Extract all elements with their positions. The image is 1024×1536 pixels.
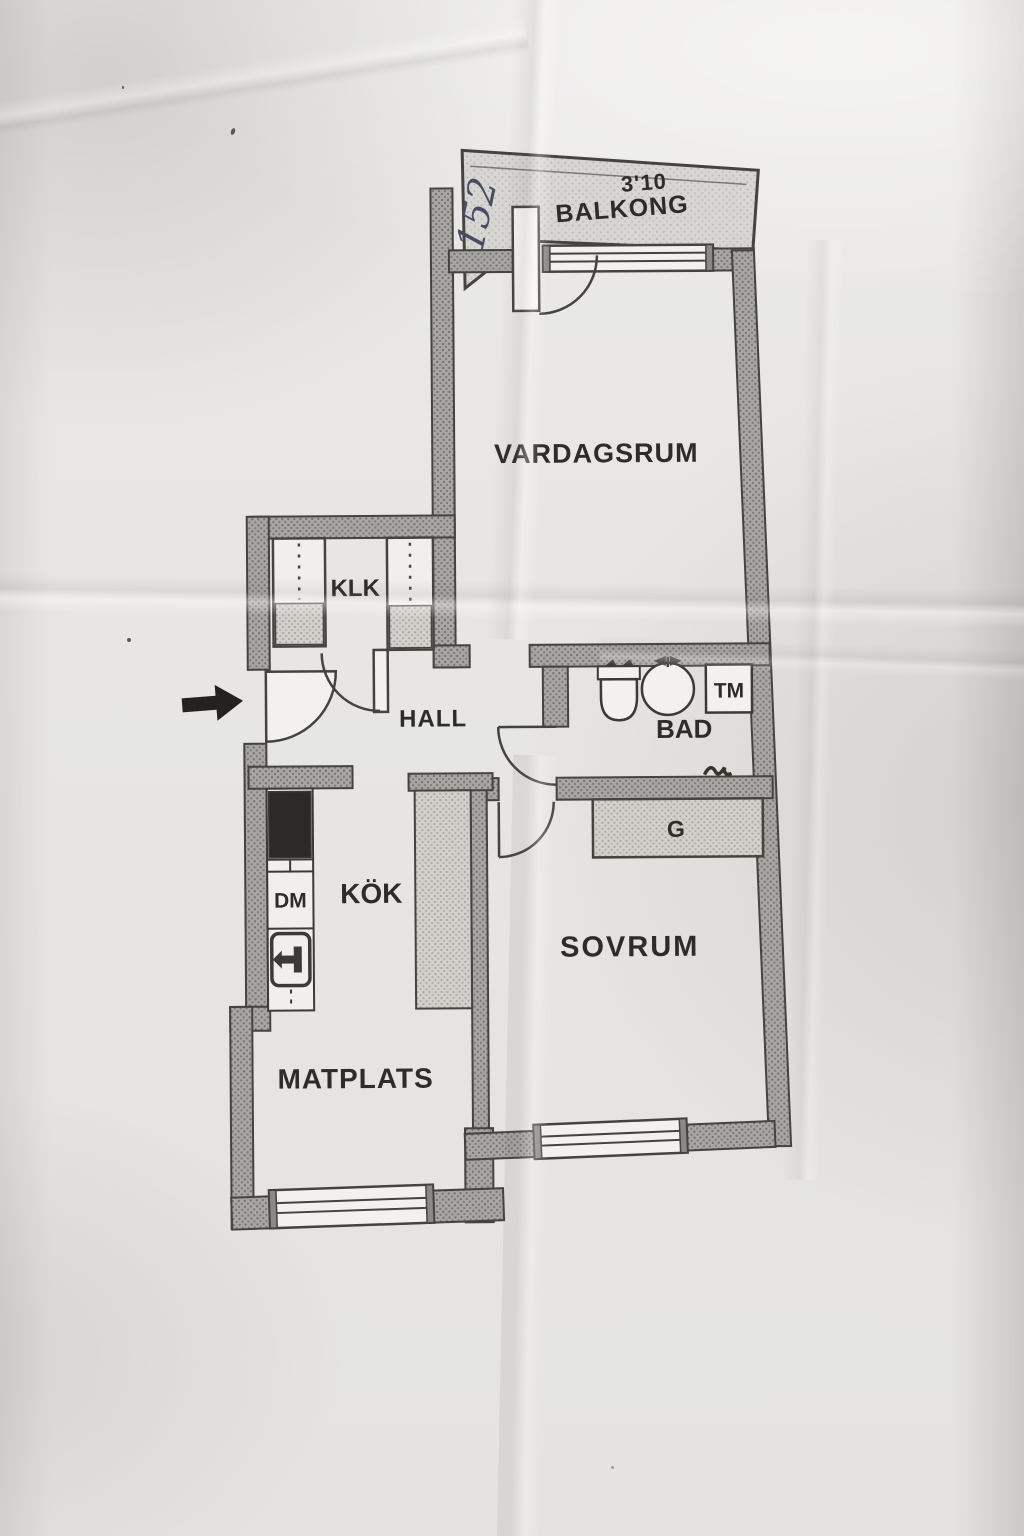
matplats-window — [269, 1185, 434, 1229]
dining-label: MATPLATS — [277, 1063, 433, 1095]
wall-segment — [230, 1007, 254, 1229]
closet-label: KLK — [330, 575, 380, 602]
bedroom-bottom-wall — [464, 1115, 775, 1162]
wall-segment — [543, 667, 568, 727]
stove-icon — [269, 791, 311, 857]
wall-segment — [251, 515, 455, 538]
floor-plan: 3'10 BALKONG 152 VARDAGSRUM KLK HALL BAD… — [0, 0, 1024, 1536]
livingroom-window — [543, 245, 713, 272]
kitchen-sink-icon — [272, 933, 310, 985]
bedroom-window — [533, 1119, 687, 1159]
floor-plan-photo: 3'10 BALKONG 152 VARDAGSRUM KLK HALL BAD… — [0, 0, 1024, 1536]
wardrobe-label: G — [667, 816, 685, 842]
matplats-bottom-wall — [231, 1182, 504, 1229]
livingroom-label: VARDAGSRUM — [494, 438, 699, 469]
closet-door-arc — [322, 653, 380, 711]
dishwasher-label: DM — [274, 889, 307, 912]
entrance-arrow-icon — [181, 683, 245, 724]
wall-segment — [471, 782, 489, 1132]
kitchen-tall-cabinet — [415, 790, 473, 1008]
pen-scribble — [704, 767, 731, 774]
washing-machine-label: TM — [714, 679, 744, 702]
wall-segment — [248, 766, 352, 789]
kitchen-label: KÖK — [340, 878, 402, 909]
bedroom-door-arc — [499, 802, 554, 857]
wall-segment — [557, 776, 773, 800]
bathroom-door-arc — [498, 727, 556, 785]
bedroom-label: SOVRUM — [560, 931, 700, 964]
cabinet-cap — [409, 773, 493, 791]
toilet-icon — [598, 659, 640, 720]
balcony-door-leaf — [513, 207, 540, 311]
entrance-door — [266, 671, 336, 741]
bathroom-label: BAD — [656, 714, 713, 744]
closet-door-leaf — [374, 650, 388, 712]
closet-left-bay-shelf — [275, 603, 323, 644]
hall-label: HALL — [399, 705, 467, 732]
closet-right-bay-shelf — [389, 606, 431, 648]
labels: 3'10 BALKONG 152 VARDAGSRUM KLK HALL BAD… — [269, 168, 747, 1095]
wall-segment — [247, 517, 270, 670]
wall-segment — [434, 645, 470, 667]
